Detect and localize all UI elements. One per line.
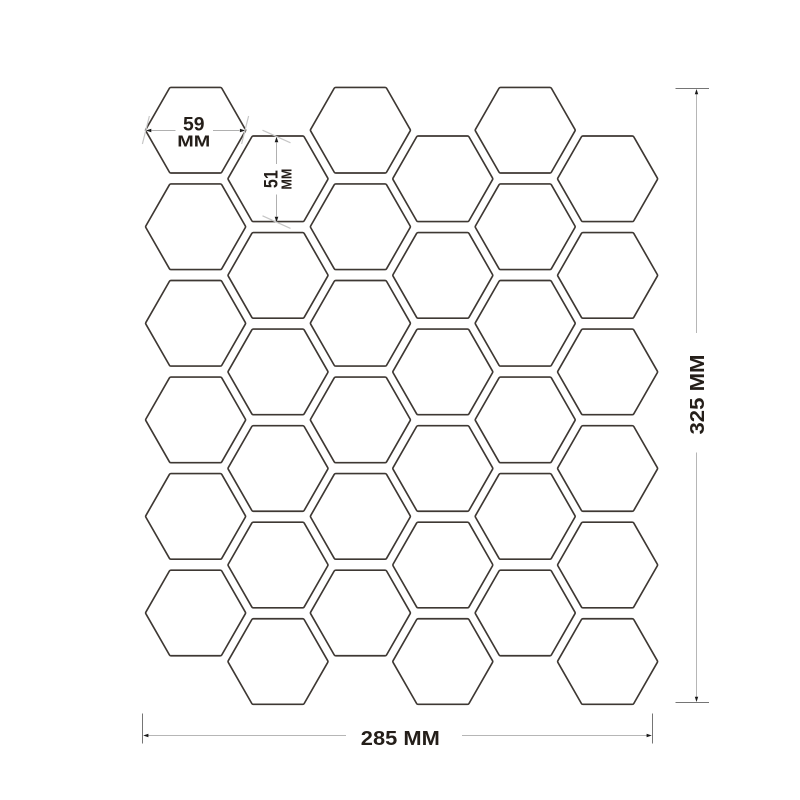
svg-text:59: 59 [183,114,205,136]
svg-text:325 MM: 325 MM [686,355,709,435]
svg-text:285 MM: 285 MM [361,728,440,750]
svg-text:MM: MM [279,169,295,190]
svg-text:MM: MM [177,133,210,150]
